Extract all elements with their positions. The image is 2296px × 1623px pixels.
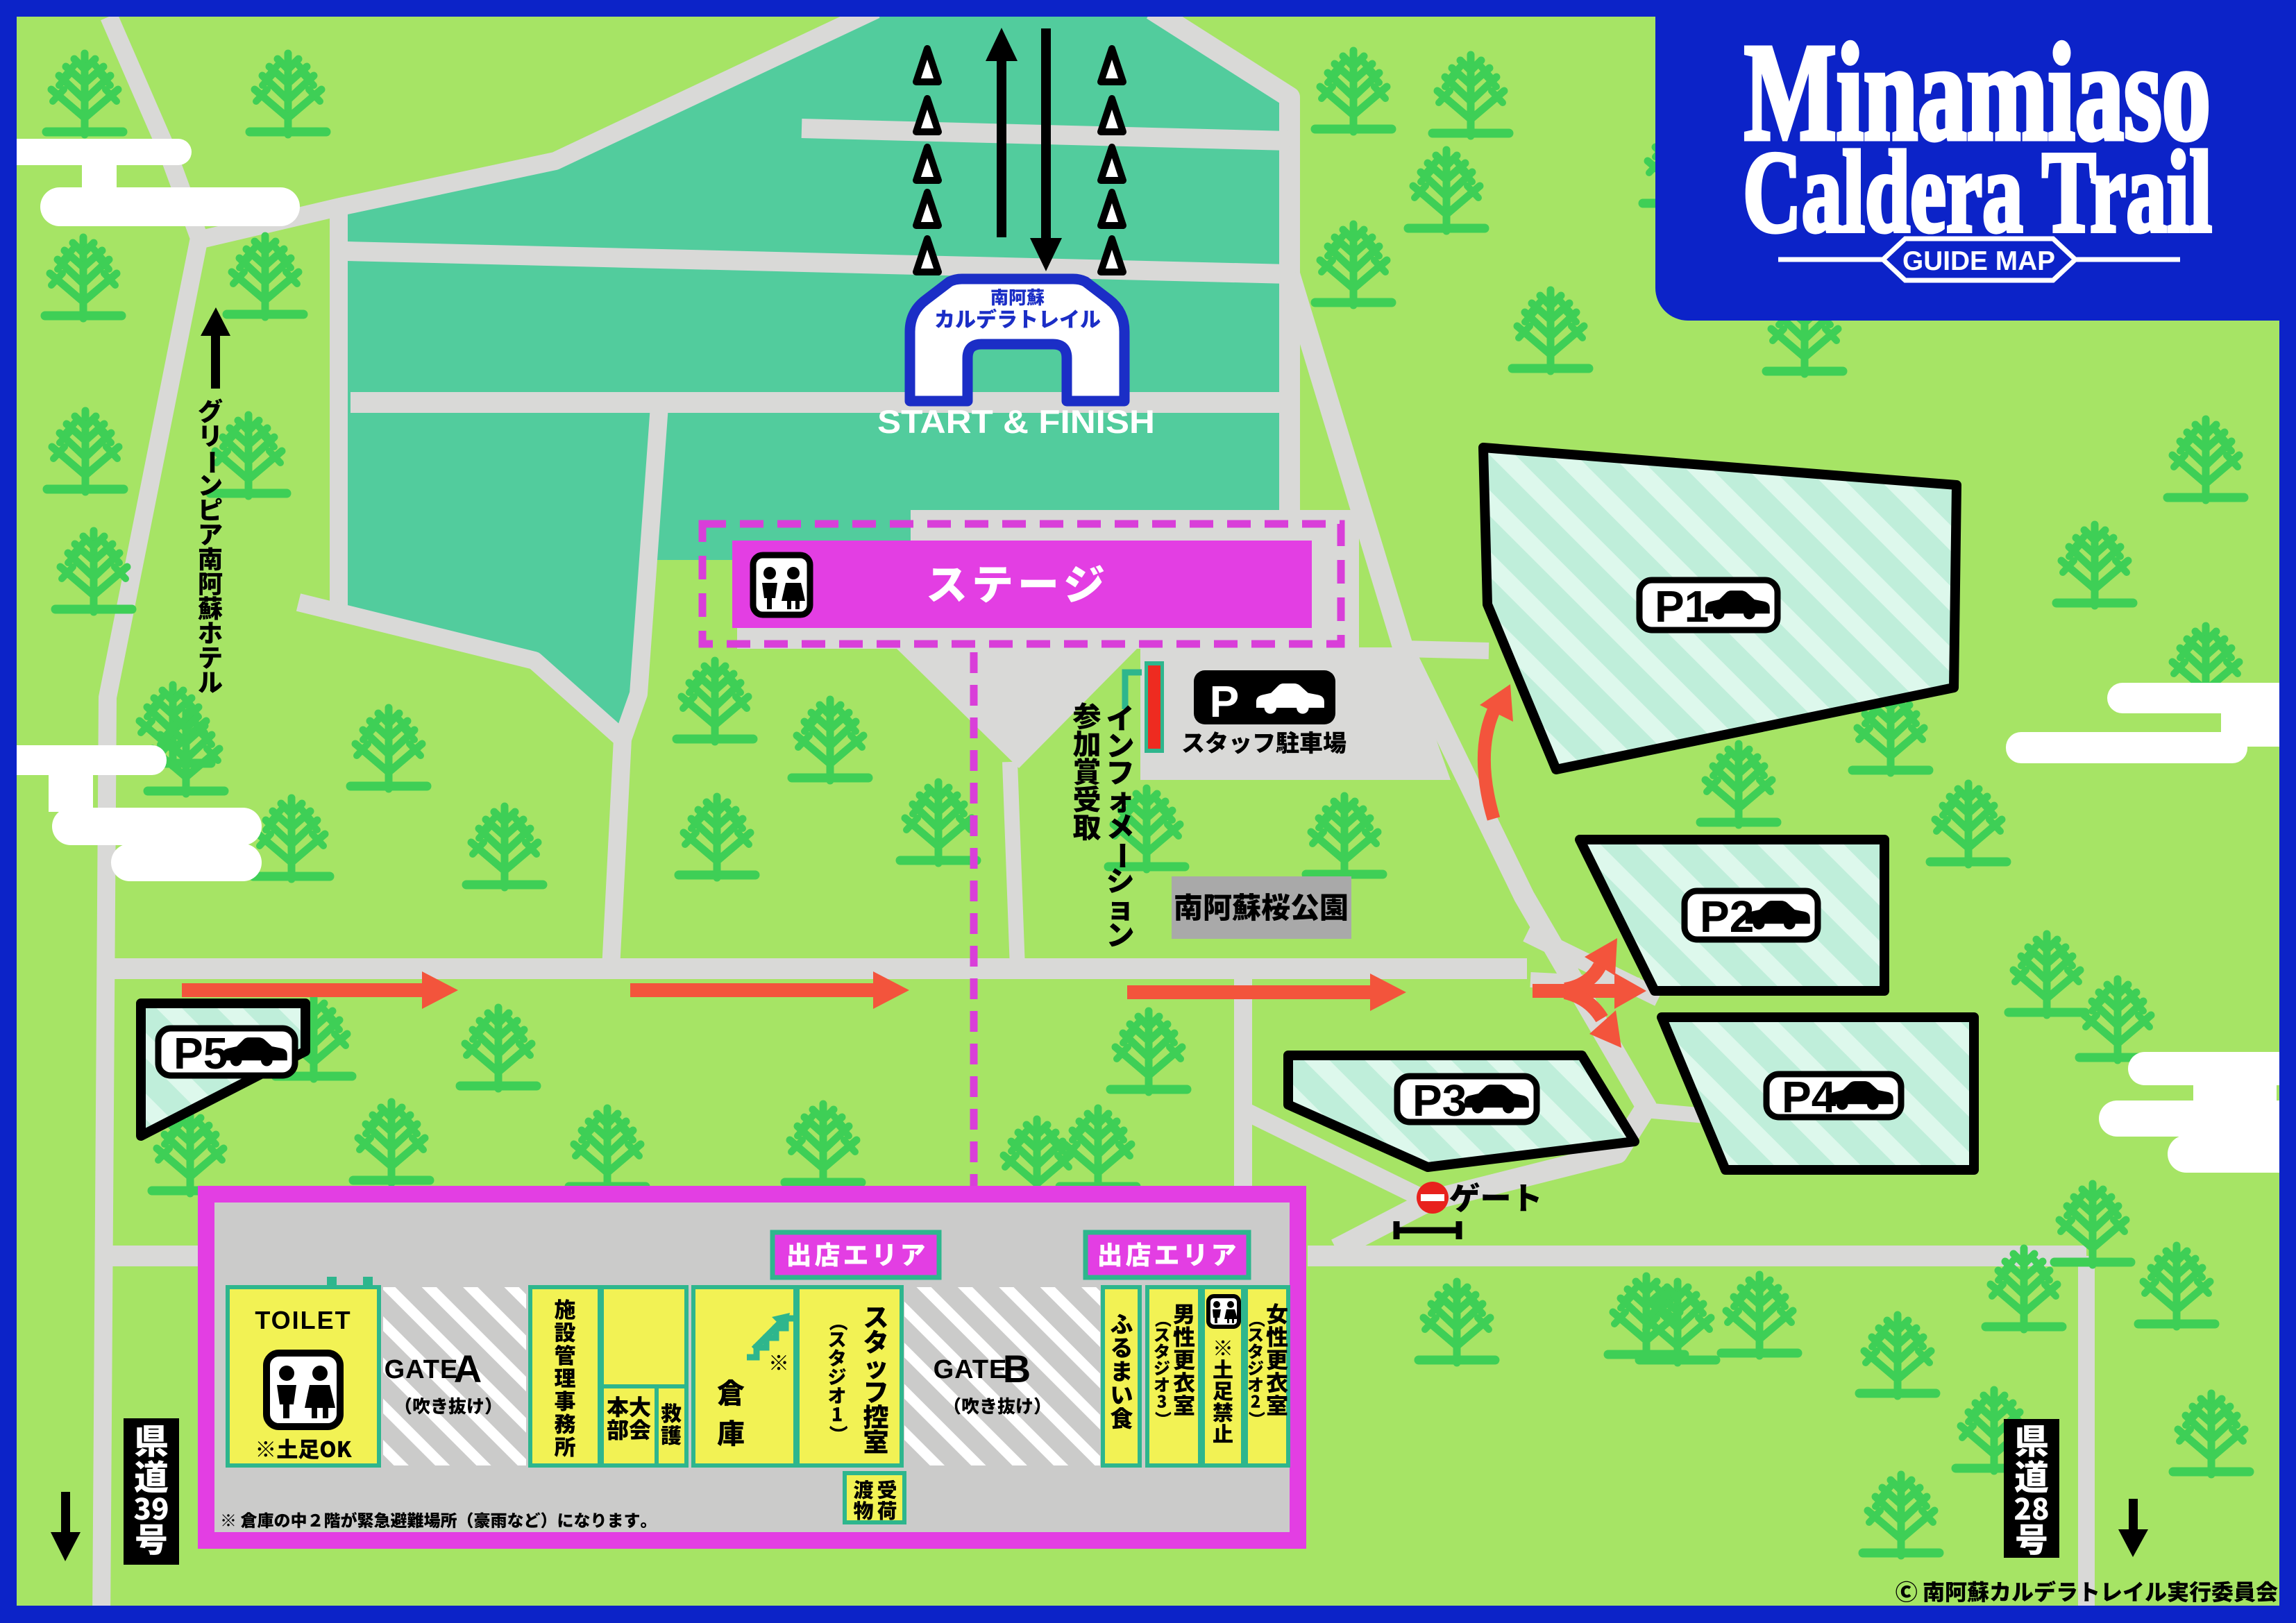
- svg-text:P3: P3: [1412, 1076, 1467, 1125]
- svg-text:GATE: GATE: [385, 1355, 459, 1384]
- svg-text:GATE: GATE: [934, 1355, 1008, 1384]
- svg-text:START & FINISH: START & FINISH: [877, 403, 1155, 440]
- svg-text:P4: P4: [1782, 1072, 1837, 1122]
- svg-text:TOILET: TOILET: [255, 1306, 351, 1334]
- svg-text:GUIDE MAP: GUIDE MAP: [1902, 246, 2055, 276]
- svg-text:A: A: [454, 1347, 482, 1391]
- svg-text:P: P: [1210, 677, 1240, 726]
- svg-text:P5: P5: [174, 1028, 228, 1078]
- svg-text:B: B: [1003, 1347, 1031, 1391]
- svg-text:P1: P1: [1655, 581, 1709, 631]
